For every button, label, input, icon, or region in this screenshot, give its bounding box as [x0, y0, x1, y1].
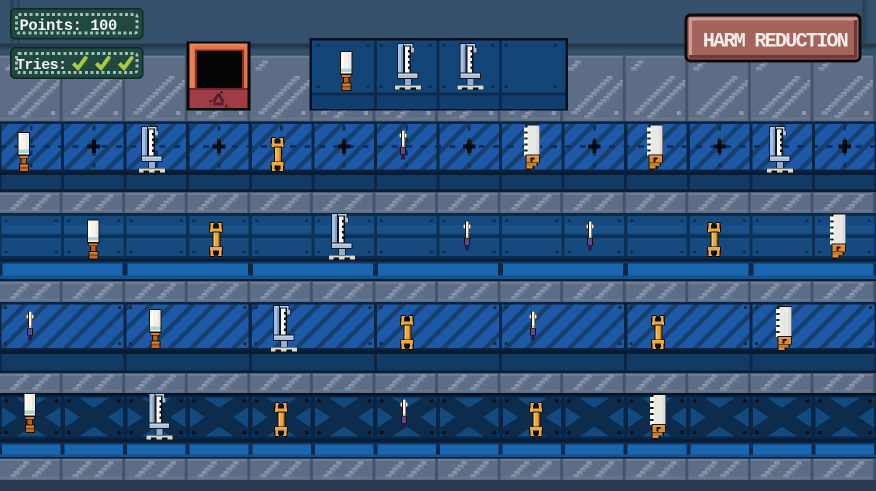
svg-text:Tries:: Tries:: [16, 57, 66, 74]
svg-text:HARM REDUCTION: HARM REDUCTION: [703, 31, 848, 54]
svg-text:Points: 100: Points: 100: [20, 17, 118, 35]
